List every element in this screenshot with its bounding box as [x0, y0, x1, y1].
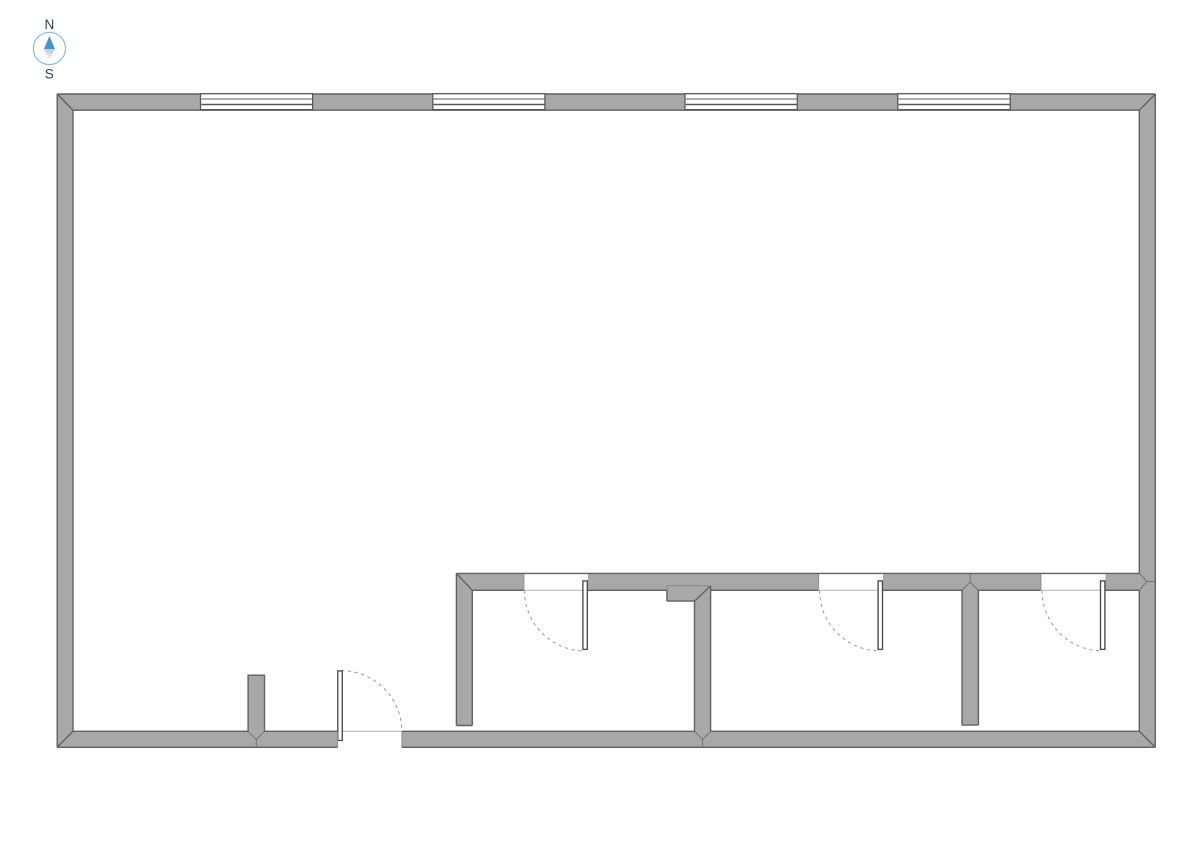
svg-text:N: N	[45, 17, 55, 32]
svg-text:S: S	[45, 67, 54, 82]
